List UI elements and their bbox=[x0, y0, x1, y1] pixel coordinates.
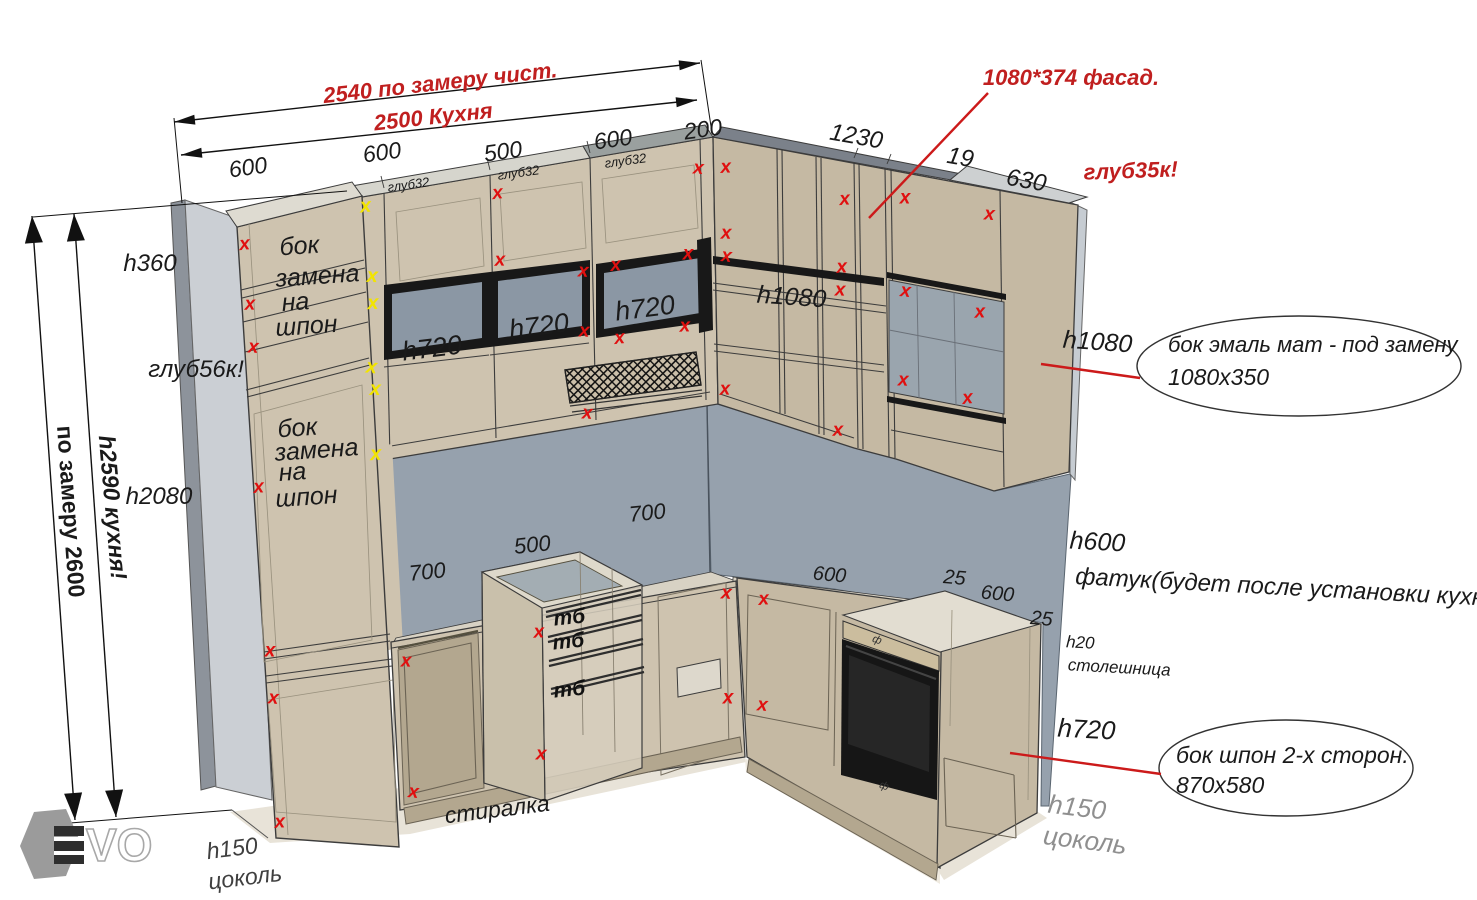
svg-text:глуб56к!: глуб56к! bbox=[148, 356, 244, 383]
svg-text:бок шпон 2-х сторон.: бок шпон 2-х сторон. bbox=[1176, 742, 1409, 768]
svg-text:1080*374 фасад.: 1080*374 фасад. bbox=[983, 65, 1159, 90]
svg-text:x: x bbox=[366, 292, 380, 314]
svg-text:x: x bbox=[532, 621, 546, 642]
svg-text:тб: тб bbox=[551, 628, 586, 654]
svg-text:h1080: h1080 bbox=[1062, 326, 1133, 359]
svg-text:h360: h360 bbox=[123, 250, 177, 277]
svg-text:шпон: шпон bbox=[274, 310, 338, 342]
svg-text:h720: h720 bbox=[1057, 713, 1117, 746]
svg-text:600: 600 bbox=[592, 124, 634, 155]
svg-text:19: 19 bbox=[945, 142, 976, 173]
svg-text:x: x bbox=[535, 743, 549, 764]
svg-text:x: x bbox=[834, 279, 847, 300]
svg-text:шпон: шпон bbox=[274, 481, 338, 513]
svg-text:x: x bbox=[682, 244, 695, 265]
svg-text:h2080: h2080 bbox=[126, 483, 193, 510]
svg-text:600: 600 bbox=[227, 152, 269, 183]
svg-text:x: x bbox=[831, 419, 844, 440]
svg-text:600: 600 bbox=[980, 582, 1015, 607]
svg-text:x: x bbox=[720, 223, 733, 244]
svg-text:500: 500 bbox=[482, 136, 524, 167]
svg-text:25: 25 bbox=[941, 566, 967, 590]
svg-text:x: x bbox=[722, 688, 735, 709]
svg-text:870x580: 870x580 bbox=[1176, 772, 1264, 798]
svg-text:VO: VO bbox=[86, 819, 152, 871]
svg-text:x: x bbox=[400, 650, 413, 671]
svg-text:x: x bbox=[678, 315, 692, 336]
svg-text:тб: тб bbox=[552, 676, 587, 702]
svg-text:x: x bbox=[365, 265, 379, 287]
svg-text:тб: тб bbox=[552, 604, 587, 630]
svg-text:x: x bbox=[897, 369, 911, 390]
svg-text:x: x bbox=[578, 320, 592, 341]
svg-text:x: x bbox=[493, 249, 506, 270]
svg-text:x: x bbox=[368, 378, 381, 400]
svg-text:200: 200 bbox=[681, 114, 724, 145]
svg-text:x: x bbox=[973, 301, 987, 322]
svg-text:x: x bbox=[264, 641, 277, 662]
svg-text:1080x350: 1080x350 bbox=[1168, 364, 1269, 390]
svg-text:h20: h20 bbox=[1066, 632, 1096, 652]
svg-text:x: x bbox=[718, 378, 731, 399]
svg-text:700: 700 bbox=[408, 557, 448, 586]
svg-text:25: 25 bbox=[1028, 607, 1054, 631]
svg-text:x: x bbox=[899, 188, 912, 209]
svg-text:h1080: h1080 bbox=[756, 281, 827, 314]
svg-text:500: 500 bbox=[513, 530, 553, 559]
svg-text:бок: бок bbox=[279, 231, 322, 262]
svg-text:x: x bbox=[369, 443, 383, 466]
svg-text:глуб35к!: глуб35к! bbox=[1083, 156, 1178, 184]
svg-text:бок эмаль мат - под замену: бок эмаль мат - под замену bbox=[1168, 332, 1460, 357]
svg-text:x: x bbox=[243, 293, 256, 314]
svg-text:700: 700 bbox=[628, 498, 668, 527]
svg-text:600: 600 bbox=[812, 563, 847, 588]
svg-text:h600: h600 bbox=[1069, 527, 1126, 558]
svg-text:600: 600 bbox=[361, 137, 403, 168]
